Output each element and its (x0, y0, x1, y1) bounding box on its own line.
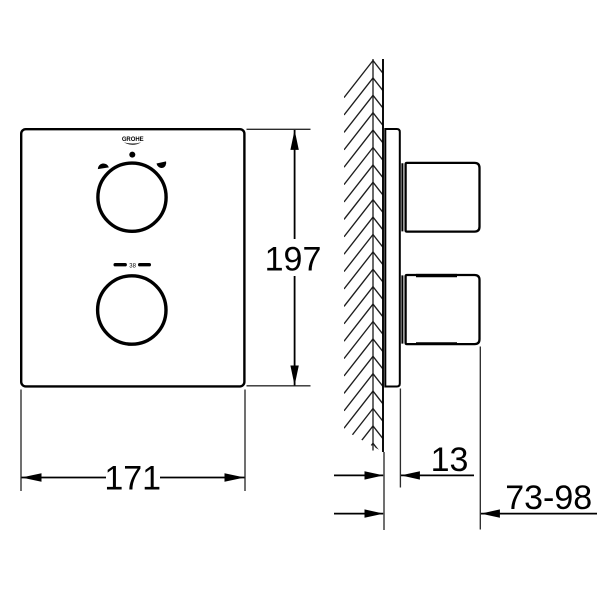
svg-text:38: 38 (129, 263, 136, 269)
svg-text:13: 13 (431, 441, 469, 479)
svg-text:197: 197 (265, 241, 322, 279)
svg-text:171: 171 (104, 459, 161, 497)
svg-text:GROHE: GROHE (122, 137, 144, 143)
svg-text:73-98: 73-98 (505, 479, 592, 517)
